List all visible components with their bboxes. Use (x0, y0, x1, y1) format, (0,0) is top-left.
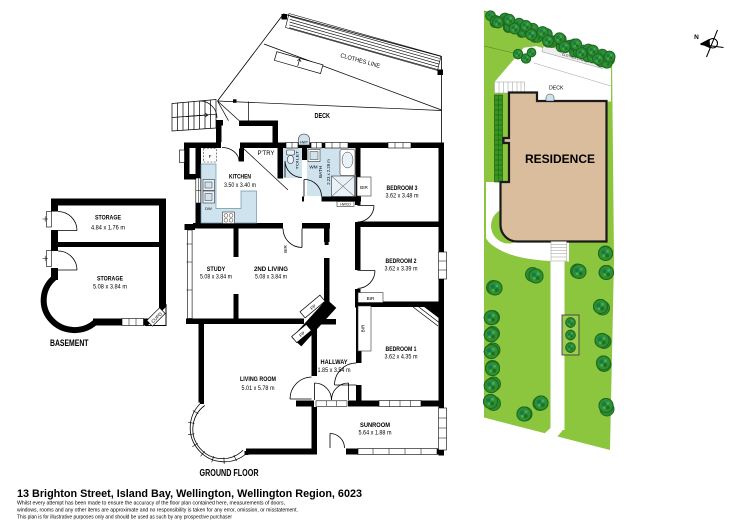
svg-text:3.62 x 3.48 m: 3.62 x 3.48 m (386, 194, 419, 200)
svg-text:3.50 x 3.40 m: 3.50 x 3.40 m (224, 183, 256, 189)
svg-text:STORAGE: STORAGE (95, 215, 121, 222)
svg-text:STUDY: STUDY (207, 266, 226, 273)
svg-text:BIR: BIR (360, 185, 368, 190)
svg-text:KITCHEN: KITCHEN (229, 174, 251, 181)
svg-text:BIR: BIR (361, 324, 366, 332)
svg-text:WM: WM (309, 165, 317, 170)
svg-text:This plan is for illustrative: This plan is for illustrative purposes o… (17, 515, 232, 521)
svg-text:P'TRY: P'TRY (258, 151, 275, 157)
svg-text:5.08 x 3.84 m: 5.08 x 3.84 m (200, 275, 232, 281)
svg-text:13 Brighton Street, Island Bay: 13 Brighton Street, Island Bay, Wellingt… (17, 488, 362, 500)
svg-text:BASEMENT: BASEMENT (50, 338, 89, 349)
svg-text:BEDROOM 1: BEDROOM 1 (386, 346, 417, 353)
svg-text:GROUND FLOOR: GROUND FLOOR (200, 467, 259, 479)
svg-text:SUNROOM: SUNROOM (360, 422, 390, 429)
svg-text:2.23 x 2.29 m: 2.23 x 2.29 m (326, 159, 331, 185)
svg-text:HALLWAY: HALLWAY (321, 359, 348, 366)
svg-text:5.08 x 3.84 m: 5.08 x 3.84 m (93, 285, 127, 291)
svg-text:5.01 x 5.78 m: 5.01 x 5.78 m (242, 386, 275, 392)
svg-text:5.64 x 1.88 m: 5.64 x 1.88 m (359, 431, 392, 437)
svg-text:RESIDENCE: RESIDENCE (525, 154, 595, 166)
svg-text:N: N (694, 34, 699, 41)
svg-text:BEDROOM 3: BEDROOM 3 (387, 185, 418, 192)
svg-text:windows, rooms and any other i: windows, rooms and any other items are a… (16, 508, 298, 514)
svg-text:CLOTHES LINE: CLOTHES LINE (339, 53, 380, 70)
svg-text:DECK: DECK (549, 86, 564, 92)
svg-text:1.85 x 3.54 m: 1.85 x 3.54 m (318, 368, 351, 374)
svg-text:2ND LIVING: 2ND LIVING (254, 266, 288, 273)
svg-text:LIVING ROOM: LIVING ROOM (240, 376, 276, 383)
svg-text:DECK: DECK (315, 113, 331, 120)
svg-text:DW: DW (205, 206, 212, 211)
svg-text:4.84 x 1.76 m: 4.84 x 1.76 m (91, 225, 125, 231)
svg-text:STORAGE: STORAGE (97, 275, 123, 282)
svg-text:HWCD: HWCD (340, 202, 351, 206)
svg-text:3.62 x 4.35 m: 3.62 x 4.35 m (385, 355, 418, 361)
svg-text:TOILET: TOILET (295, 150, 300, 170)
svg-text:5.08 x 3.84 m: 5.08 x 3.84 m (255, 275, 287, 281)
svg-text:BIR: BIR (283, 244, 288, 252)
svg-text:BIR: BIR (367, 296, 375, 301)
svg-text:Whilst every attempt has been: Whilst every attempt has been made to en… (17, 501, 285, 507)
svg-text:BEDROOM 2: BEDROOM 2 (386, 258, 417, 265)
svg-text:3.62 x 3.39 m: 3.62 x 3.39 m (385, 267, 418, 273)
svg-text:F: F (209, 154, 212, 159)
svg-text:BATH: BATH (318, 166, 323, 178)
svg-text:HWT: HWT (300, 141, 308, 145)
